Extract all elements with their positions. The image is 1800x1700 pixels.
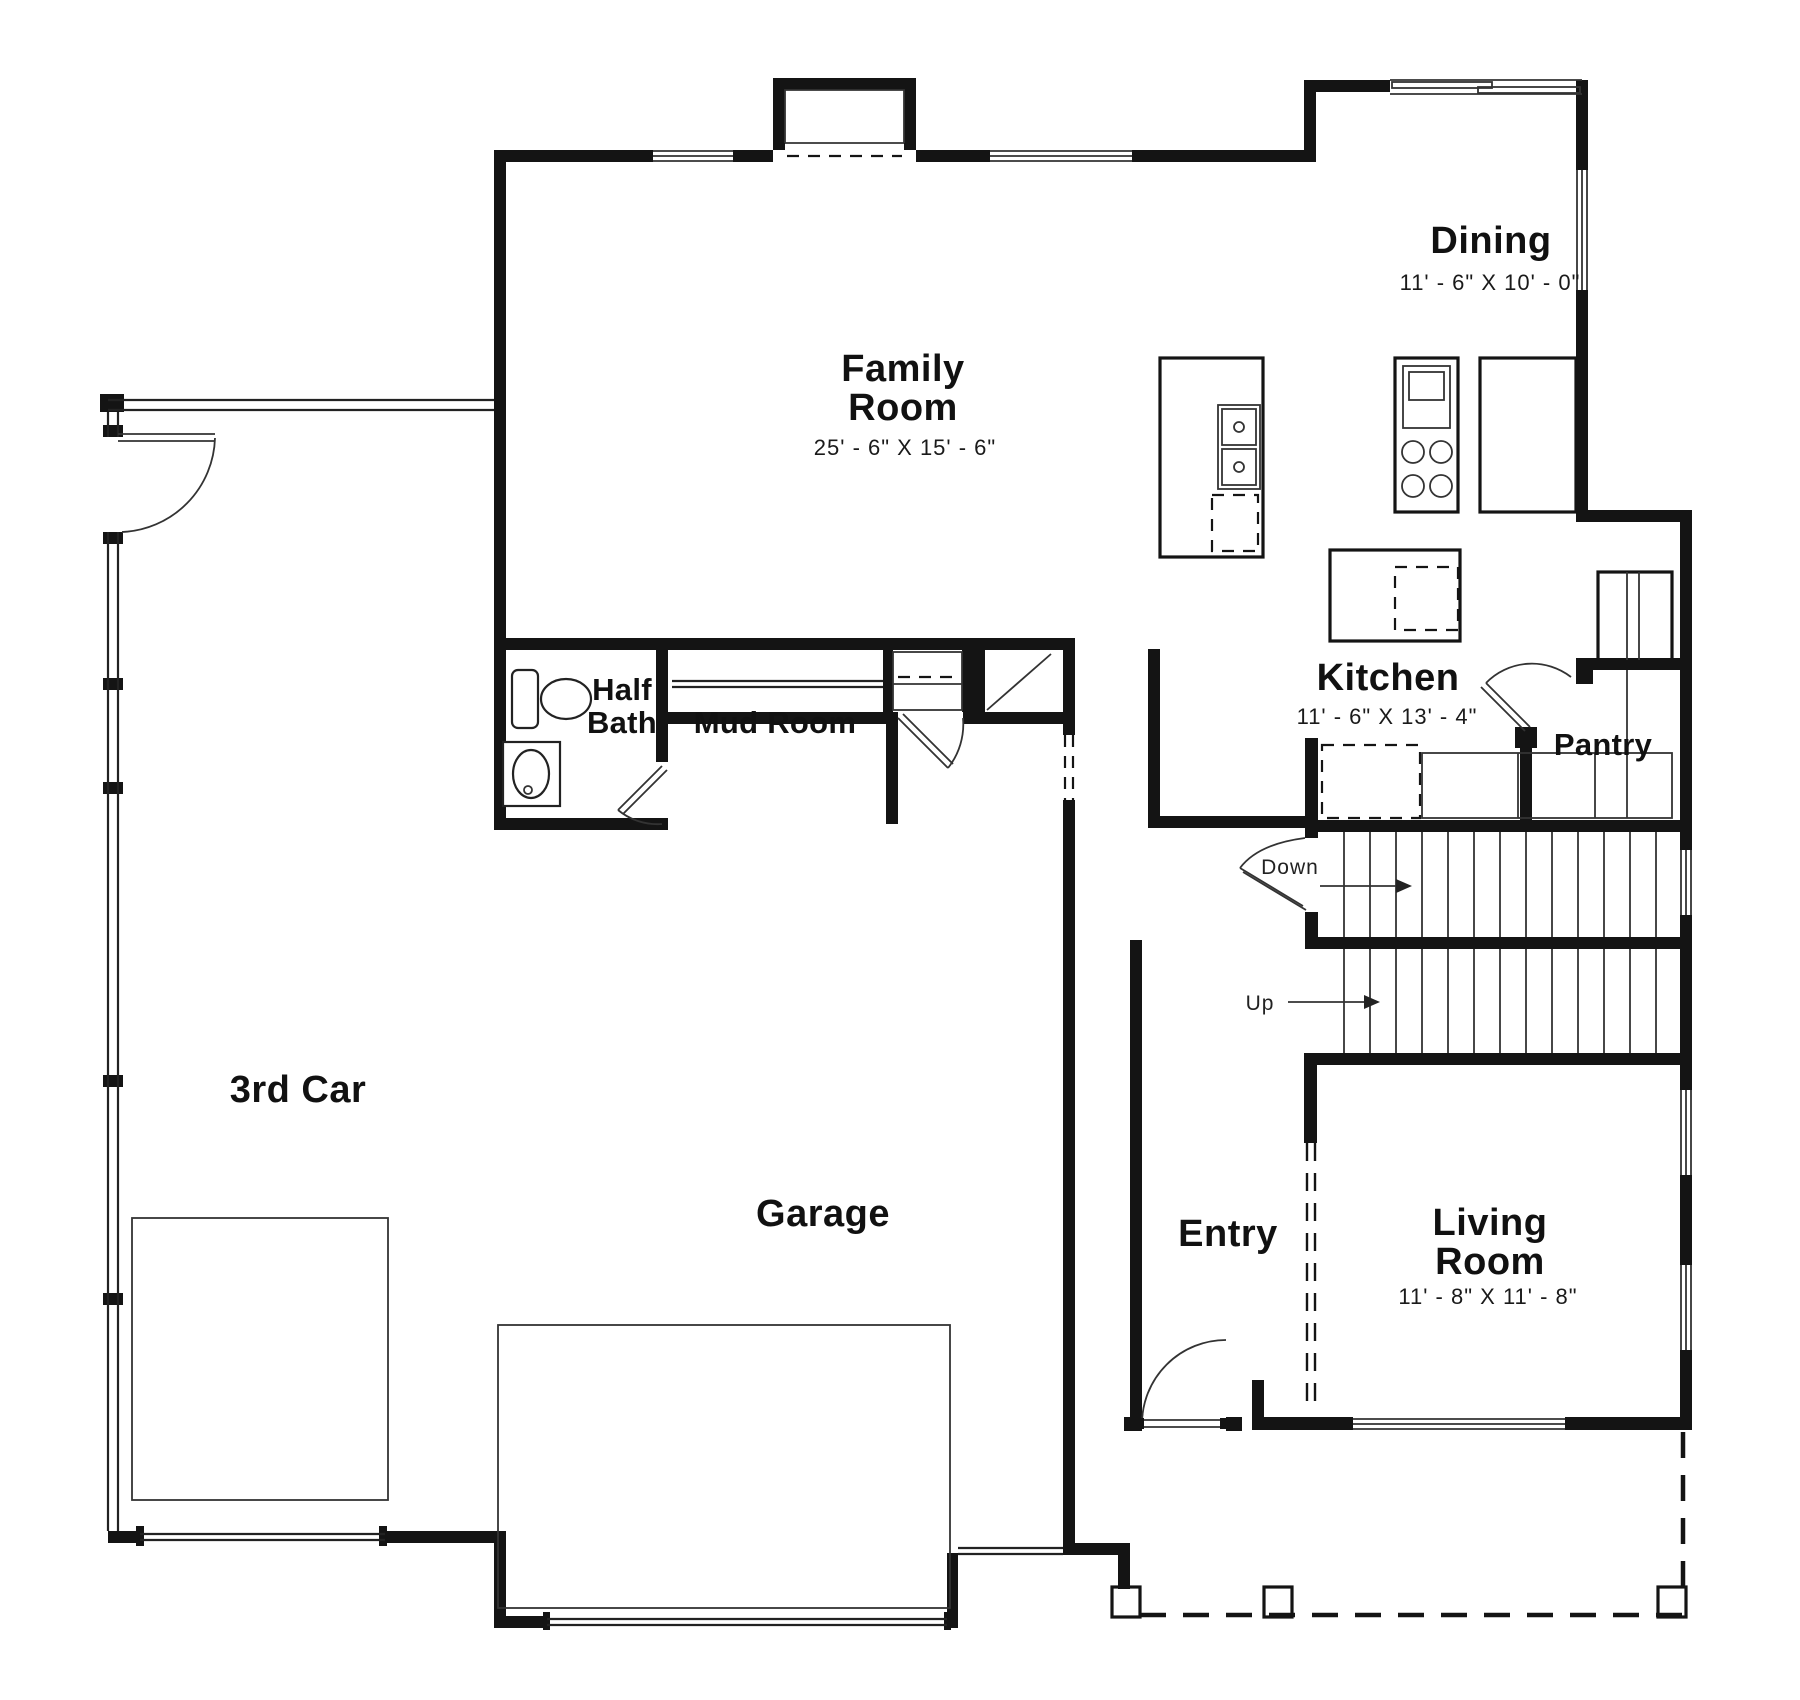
dining-window-pane-2: [1478, 87, 1580, 93]
doors: [118, 434, 1571, 1429]
porch-column: [1112, 1587, 1140, 1617]
kitchen-back-counter: [1422, 753, 1672, 818]
family-room-dims: 25' - 6" X 15' - 6": [814, 435, 996, 460]
double-sink-icon: [1218, 405, 1260, 489]
dishwasher-icon: [1395, 567, 1458, 630]
living-window-1: [1681, 1090, 1691, 1175]
fixtures: [132, 358, 1672, 1608]
side-counter: [1480, 358, 1576, 512]
coat-closet-icon: [987, 654, 1051, 710]
range-counter: [1395, 358, 1458, 512]
kitchen-label: Kitchen: [1317, 657, 1460, 699]
dining-window-pane-1: [1392, 82, 1492, 88]
garage-door-panel: [498, 1325, 950, 1608]
floor-plan-svg: Down Up: [0, 0, 1800, 1700]
porch-column: [1658, 1587, 1686, 1617]
island-dishwasher-icon: [1212, 495, 1258, 551]
family-room-label-1: Family: [841, 348, 964, 390]
stairs-up-label: Up: [1246, 992, 1275, 1015]
garage-label: Garage: [756, 1193, 890, 1235]
stairs-up-treads: [1344, 949, 1656, 1053]
pantry-label: Pantry: [1554, 727, 1653, 762]
kitchen-dims: 11' - 6" X 13' - 4": [1297, 704, 1478, 729]
dining-dims: 11' - 6" X 10' - 0": [1400, 270, 1581, 295]
half-bath-label-2: Bath: [587, 705, 657, 740]
living-room-dims: 11' - 8" X 11' - 8": [1398, 1284, 1577, 1309]
family-window-left: [653, 151, 733, 161]
porch-column: [1264, 1587, 1292, 1617]
mud-room-label: Mud Room: [694, 705, 857, 740]
burner-icon: [1430, 475, 1452, 497]
mudroom-bench-icon: [672, 681, 883, 687]
entry-living-opening: [1307, 1143, 1315, 1410]
stair-window: [1681, 850, 1691, 915]
living-window-2: [1681, 1265, 1691, 1350]
pantry-door: [1481, 664, 1571, 731]
burner-icon: [1402, 441, 1424, 463]
bumpout-inner: [785, 90, 904, 143]
dining-label: Dining: [1430, 220, 1551, 262]
family-room-label-2: Room: [848, 387, 958, 429]
garage-side-door: [118, 434, 215, 532]
half-bath-label-1: Half: [592, 672, 652, 707]
walls: [100, 78, 1692, 1630]
third-car-door-panel: [132, 1218, 388, 1500]
garage-exterior-walls: [108, 400, 1063, 1625]
hall-cased-opening: [1065, 735, 1073, 800]
up-arrow-head: [1364, 995, 1380, 1009]
mudroom-closet: [893, 652, 962, 710]
family-window-right: [990, 151, 1132, 161]
third-car-label: 3rd Car: [230, 1069, 367, 1111]
living-bottom-window: [1353, 1419, 1565, 1429]
living-room-label-2: Room: [1435, 1241, 1545, 1283]
entry-label: Entry: [1178, 1213, 1278, 1255]
refrigerator-icon: [1598, 572, 1672, 660]
floor-plan: Down Up: [0, 0, 1800, 1700]
stairs-down-treads: [1344, 832, 1656, 937]
front-entry-door: [1136, 1340, 1228, 1429]
toilet-bowl-icon: [541, 679, 591, 719]
burner-icon: [1430, 441, 1452, 463]
living-room-label-1: Living: [1433, 1202, 1548, 1244]
burner-icon: [1402, 475, 1424, 497]
oven-icon: [1403, 366, 1450, 428]
down-arrow-head: [1396, 879, 1412, 893]
toilet-tank-icon: [512, 670, 538, 728]
room-labels: Family Room 25' - 6" X 15' - 6" Dining 1…: [230, 220, 1653, 1309]
stairs-down-label: Down: [1261, 856, 1319, 879]
half-bath-door: [618, 766, 667, 824]
porch: [1112, 1432, 1686, 1617]
mudroom-garage-door: [898, 714, 963, 768]
kitchen-back-counter-dashed: [1322, 745, 1420, 818]
